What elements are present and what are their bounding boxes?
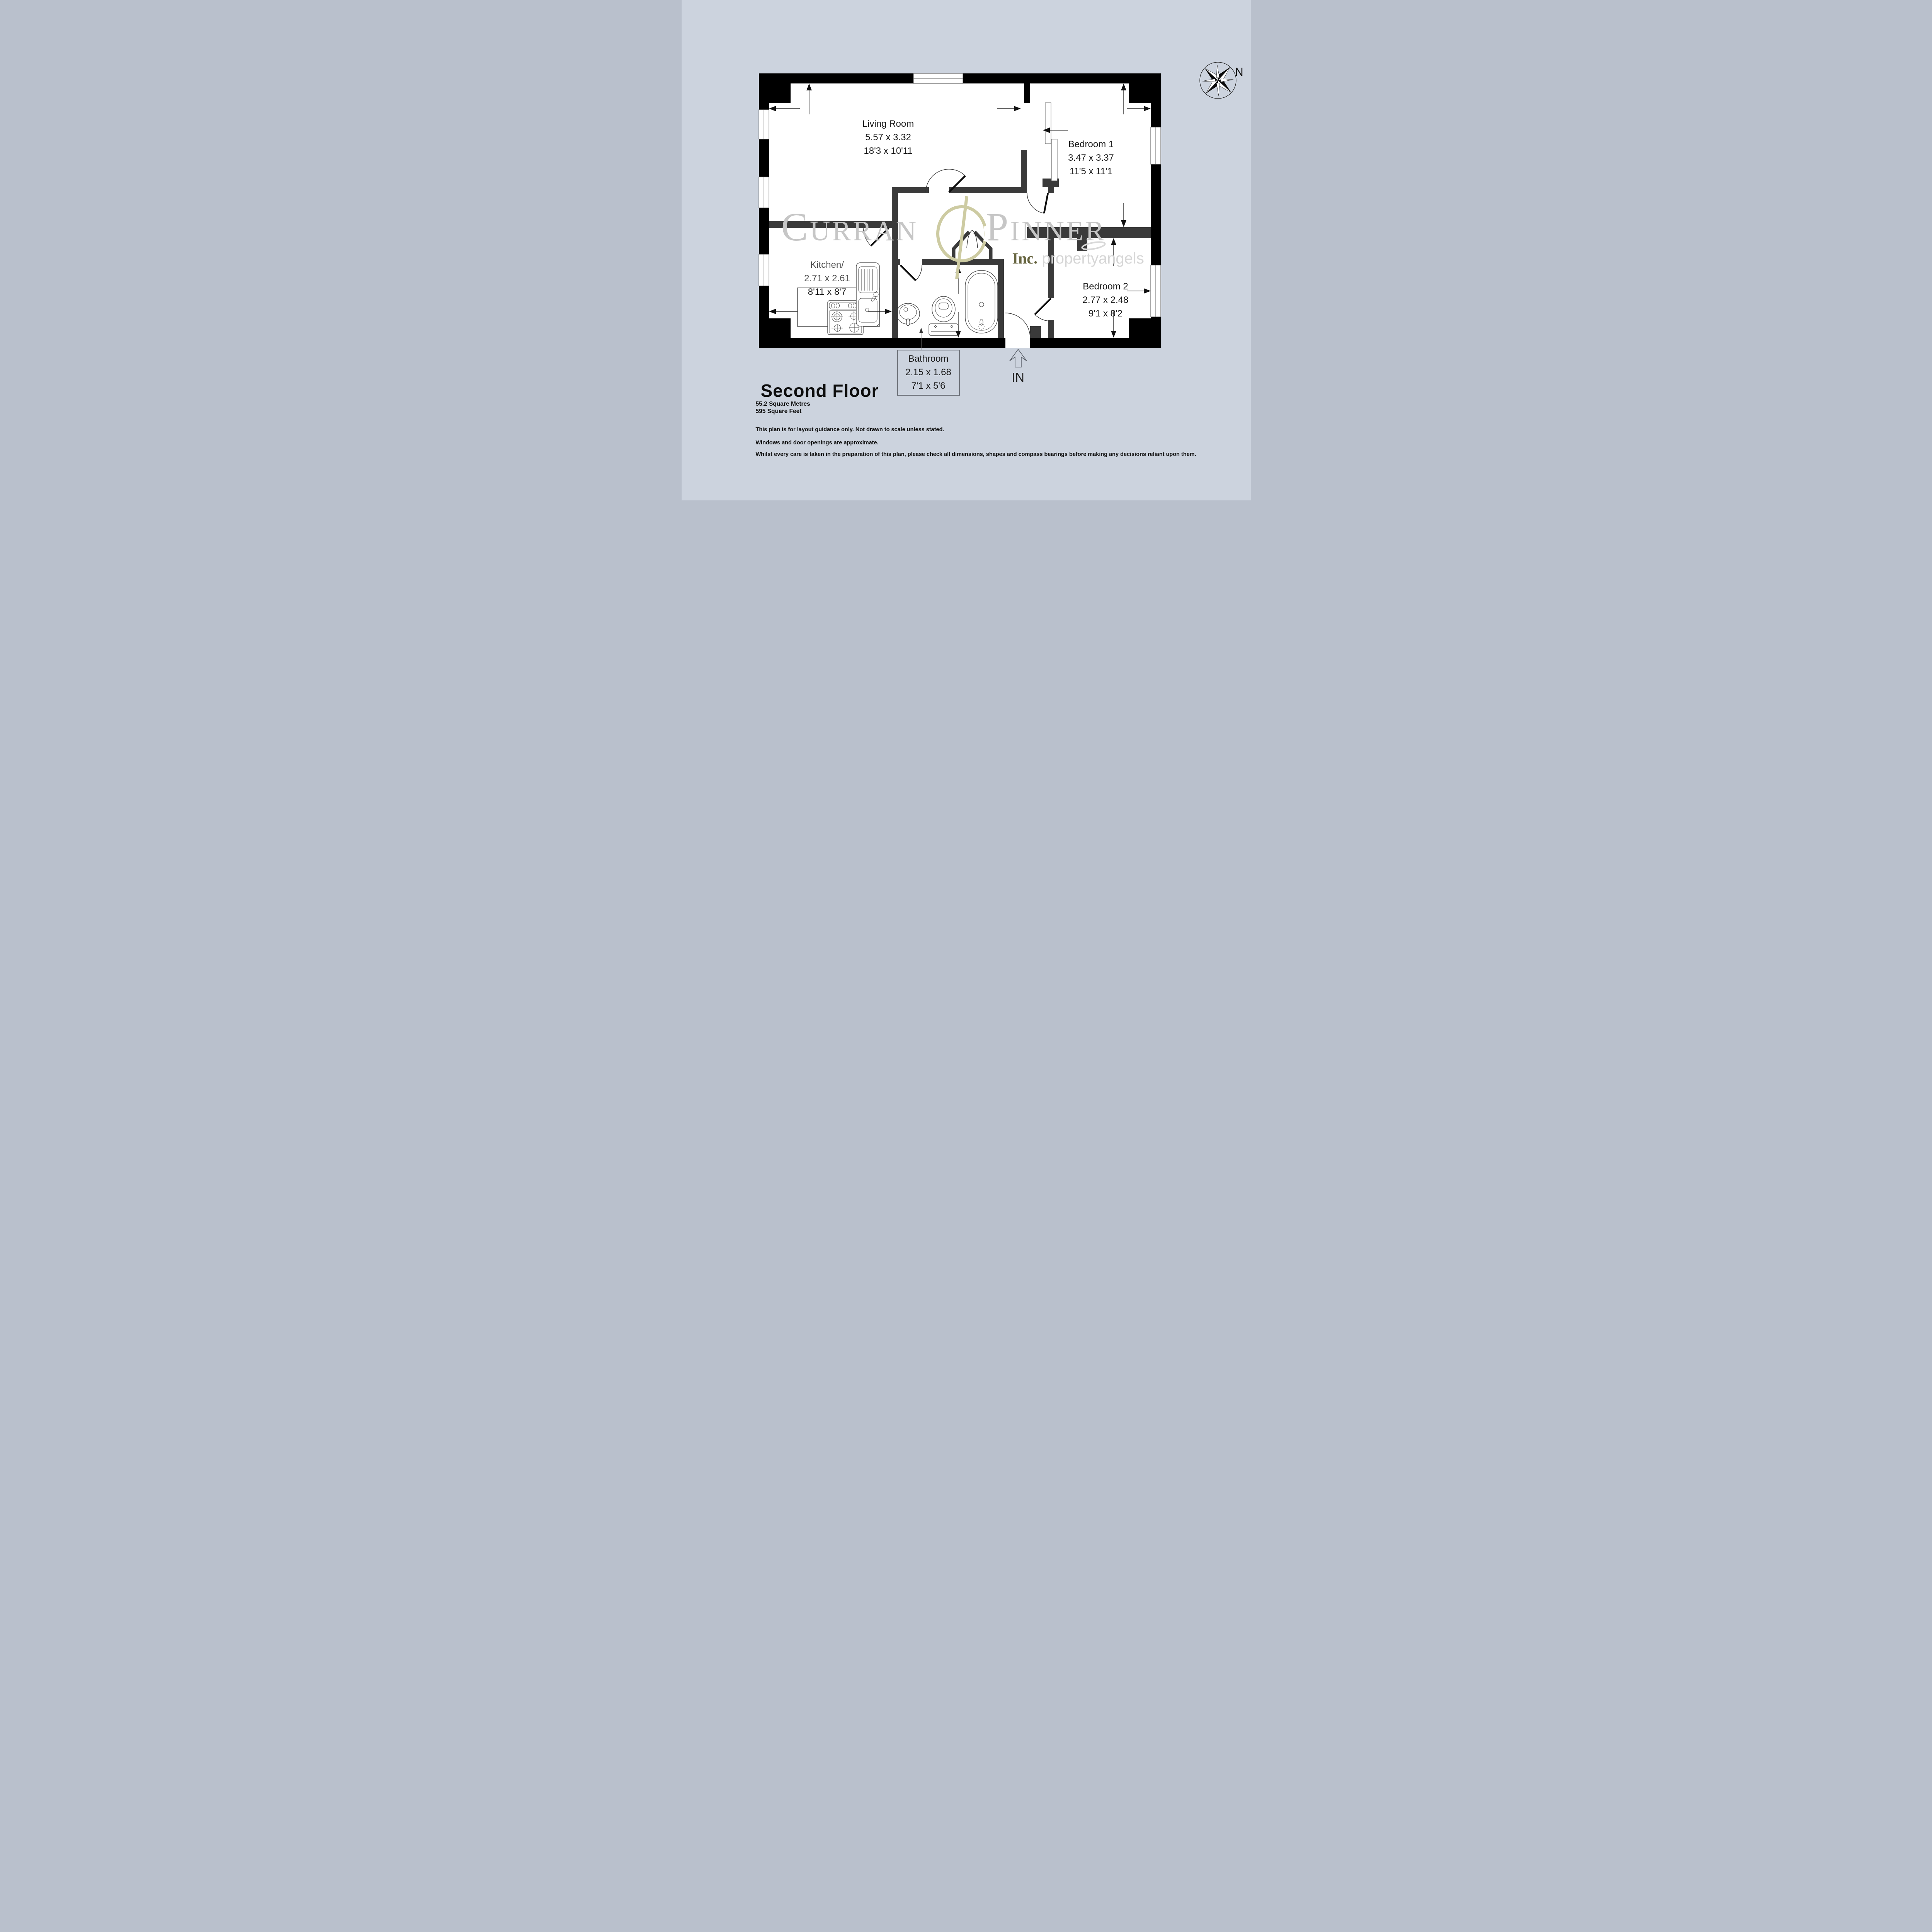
room-size-metric: 2.77 x 2.48	[1053, 293, 1159, 307]
room-size-metric: 2.15 x 1.68	[898, 366, 959, 379]
room-name: Bedroom 1	[1039, 138, 1143, 151]
entrance-arrow-icon	[1010, 349, 1027, 367]
room-label-bedroom-2: Bedroom 2 2.77 x 2.48 9'1 x 8'2	[1053, 280, 1159, 320]
compass-north-label: N	[1235, 66, 1243, 78]
room-size-imperial: 7'1 x 5'6	[898, 379, 959, 393]
room-label-bedroom-1: Bedroom 1 3.47 x 3.37 11'5 x 11'1	[1039, 138, 1143, 178]
room-size-metric: 3.47 x 3.37	[1039, 151, 1143, 165]
window	[1151, 127, 1161, 164]
room-name: Bedroom 2	[1053, 280, 1159, 293]
compass-rose-icon: N	[1200, 62, 1243, 99]
area-metric: 55.2 Square Metres	[756, 400, 810, 408]
window	[759, 177, 769, 208]
window	[913, 73, 963, 83]
room-size-imperial: 11'5 x 11'1	[1039, 165, 1143, 178]
room-size-imperial: 8'11 x 8'7	[779, 285, 876, 299]
room-label-kitchen: Kitchen/ 2.71 x 2.61 8'11 x 8'7	[779, 258, 876, 299]
disclaimer-line: This plan is for layout guidance only. N…	[756, 427, 944, 433]
floor-plan-drawing: N	[682, 0, 1251, 500]
room-name: Kitchen/	[779, 258, 876, 272]
entrance-label: IN	[1002, 370, 1034, 385]
room-name: Bathroom	[898, 352, 959, 366]
room-size-imperial: 18'3 x 10'11	[836, 144, 940, 158]
area-imperial: 595 Square Feet	[756, 408, 802, 415]
floorplan-page: N Curran Pinner Inc. propertyangels Livi…	[682, 0, 1251, 500]
room-size-metric: 2.71 x 2.61	[779, 272, 876, 285]
room-label-living-room: Living Room 5.57 x 3.32 18'3 x 10'11	[836, 117, 940, 158]
room-name: Living Room	[836, 117, 940, 131]
bathtub	[965, 270, 998, 333]
page-title: Second Floor	[761, 380, 879, 401]
disclaimer-line: Windows and door openings are approximat…	[756, 440, 879, 446]
disclaimer-line: Whilst every care is taken in the prepar…	[756, 451, 1196, 457]
room-label-bathroom: Bathroom 2.15 x 1.68 7'1 x 5'6	[897, 350, 960, 396]
room-size-imperial: 9'1 x 8'2	[1053, 307, 1159, 320]
window	[759, 254, 769, 286]
window	[759, 110, 769, 139]
room-size-metric: 5.57 x 3.32	[836, 131, 940, 144]
